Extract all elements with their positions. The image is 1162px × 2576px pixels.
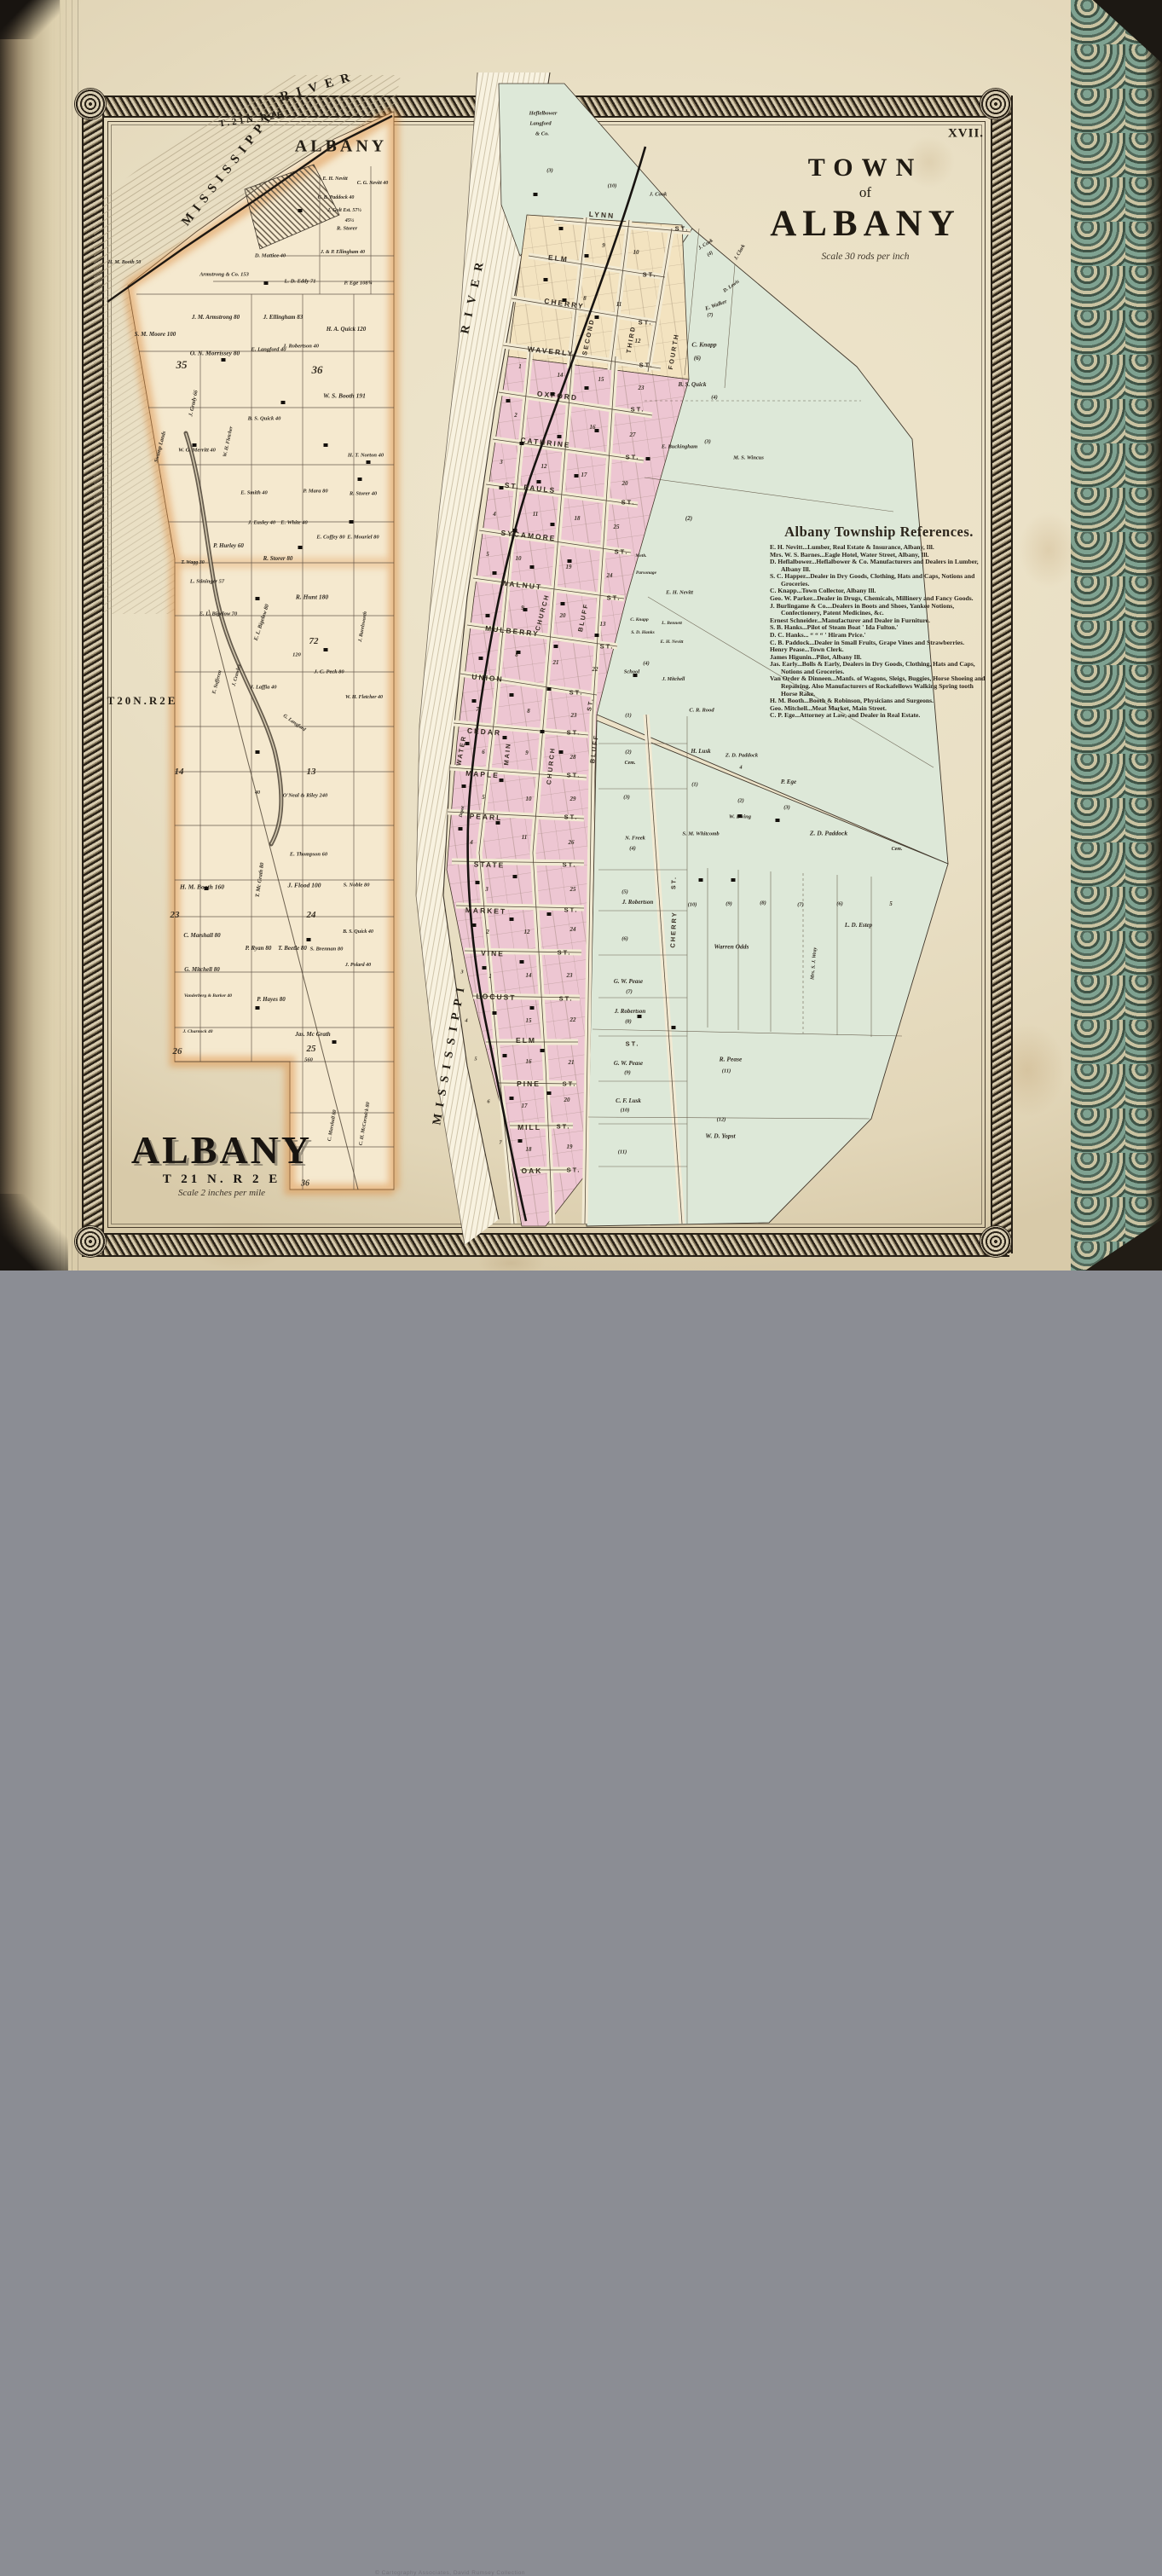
building-mark [731, 878, 736, 882]
building-mark [472, 699, 477, 703]
building-mark [324, 443, 328, 447]
building-mark [595, 634, 599, 637]
building-mark [563, 298, 567, 302]
atlas-page: { "page": {"number": "XVII.", "copyright… [0, 0, 1162, 1310]
building-mark [298, 546, 303, 549]
building-mark [646, 457, 650, 460]
building-mark [465, 742, 470, 745]
building-mark [537, 480, 541, 483]
building-mark [595, 429, 599, 432]
building-mark [486, 614, 490, 617]
building-mark [534, 193, 538, 196]
building-mark [281, 401, 286, 404]
building-mark [298, 209, 303, 212]
building-mark [518, 1139, 523, 1143]
building-mark [585, 254, 589, 258]
building-mark [222, 358, 226, 362]
building-mark [554, 645, 558, 648]
building-mark [561, 602, 565, 605]
building-mark [547, 912, 552, 916]
building-mark [503, 1054, 507, 1057]
building-mark [264, 281, 269, 285]
building-mark [738, 814, 743, 818]
building-mark [595, 315, 599, 319]
building-mark [699, 878, 703, 882]
building-mark [585, 386, 589, 390]
building-mark [479, 657, 483, 660]
building-mark [358, 478, 362, 481]
building-mark [307, 938, 311, 941]
building-mark [332, 1040, 337, 1044]
building-mark [510, 1097, 514, 1100]
building-mark [530, 1006, 535, 1010]
building-mark [544, 278, 548, 281]
building-mark [256, 1006, 260, 1010]
building-mark [350, 520, 354, 524]
building-mark [575, 474, 579, 478]
building-mark [510, 918, 514, 921]
building-mark [500, 486, 504, 489]
building-mark [520, 442, 524, 445]
building-mark [523, 608, 528, 611]
scan-background-strip: © Cartography Associates, David Rumsey C… [0, 1271, 1162, 1310]
building-mark [513, 875, 517, 878]
building-mark [530, 565, 535, 569]
building-mark [324, 648, 328, 651]
building-mark [547, 687, 552, 691]
building-mark [476, 881, 480, 884]
building-mark [638, 1015, 642, 1018]
building-mark [541, 730, 545, 733]
building-mark [193, 443, 197, 447]
building-mark [367, 460, 371, 464]
building-mark [500, 779, 504, 782]
building-mark [459, 827, 463, 831]
building-mark [256, 750, 260, 754]
building-mark [559, 750, 564, 754]
building-mark [559, 227, 564, 230]
building-mark [472, 923, 477, 927]
building-mark [541, 1049, 545, 1052]
building-mark [551, 523, 555, 526]
building-mark [205, 887, 209, 890]
building-mark [776, 819, 780, 822]
building-marks [0, 0, 1162, 1310]
building-mark [513, 529, 517, 532]
building-mark [493, 1011, 497, 1015]
building-mark [503, 736, 507, 739]
building-mark [633, 674, 638, 677]
building-mark [551, 392, 555, 396]
building-mark [256, 597, 260, 600]
building-mark [517, 651, 521, 654]
building-mark [672, 1026, 676, 1029]
building-mark [568, 559, 572, 563]
building-mark [506, 399, 511, 402]
building-mark [496, 821, 500, 825]
building-mark [493, 571, 497, 575]
building-mark [483, 966, 487, 970]
building-mark [462, 784, 466, 788]
collection-credit: © Cartography Associates, David Rumsey C… [375, 2570, 525, 2576]
building-mark [520, 960, 524, 964]
building-mark [510, 693, 514, 697]
building-mark [558, 435, 562, 438]
building-mark [547, 1091, 552, 1095]
